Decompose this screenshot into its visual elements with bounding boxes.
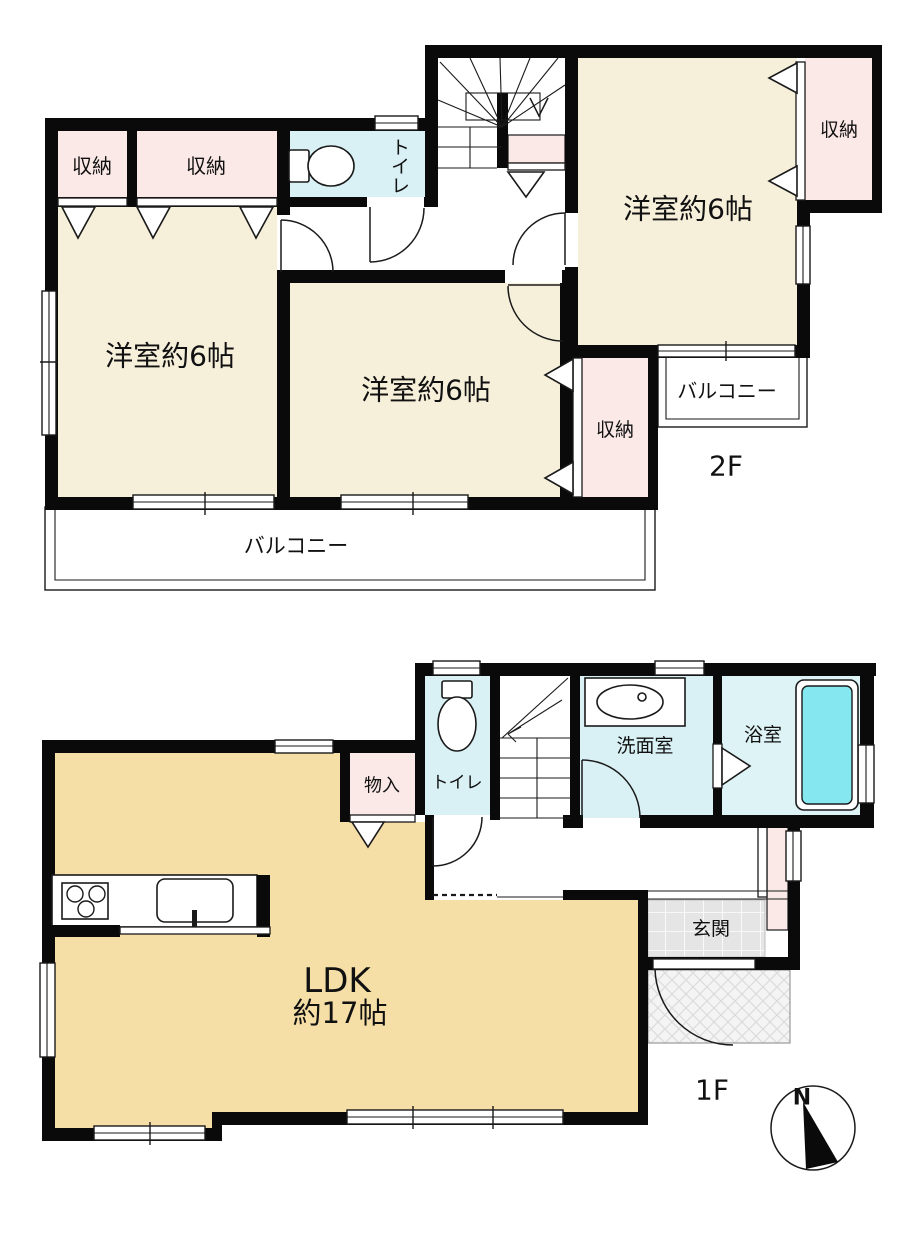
wall — [497, 93, 508, 168]
wall — [127, 131, 137, 197]
wall — [425, 45, 438, 207]
window — [796, 226, 810, 284]
closet-door — [137, 198, 277, 206]
compass: N — [771, 1086, 855, 1171]
wall — [563, 815, 583, 828]
window — [94, 1122, 205, 1145]
wall — [415, 663, 876, 676]
wall — [42, 740, 425, 753]
door — [433, 817, 482, 866]
wall — [277, 131, 290, 510]
faucet — [192, 910, 197, 927]
label-ldk-name: LDK — [303, 961, 372, 1001]
closet-stair-mini — [508, 135, 565, 163]
door-opening — [367, 197, 424, 207]
window — [375, 116, 418, 130]
window — [655, 661, 704, 675]
hall-closet — [767, 827, 788, 930]
wall — [570, 663, 580, 820]
floor1-plan: 物入 トイレ 洗面室 浴室 玄関 LDK 約17帖 1F — [40, 661, 876, 1145]
window — [786, 831, 801, 881]
label-floor1: 1F — [695, 1074, 729, 1107]
closet-door-marker — [508, 172, 544, 197]
wall — [640, 815, 874, 828]
closet-door — [573, 358, 582, 497]
label-washroom: 洗面室 — [616, 735, 673, 757]
wall — [340, 740, 350, 822]
compass-north-label: N — [793, 1086, 811, 1111]
window — [433, 661, 480, 675]
label-floor2: 2F — [709, 450, 743, 483]
label-toilet-2f: トイレ — [388, 138, 410, 195]
door-opening — [505, 270, 562, 283]
floor-plan-image: 収納 収納 トイレ 洋室約6帖 洋室約6帖 洋室約6帖 収納 収納 バルコニー … — [0, 0, 918, 1235]
label-bedroom-middle: 洋室約6帖 — [361, 374, 491, 407]
window — [40, 963, 55, 1057]
wall — [45, 118, 430, 131]
label-closet-right: 収納 — [820, 119, 858, 141]
window — [858, 745, 874, 803]
washbasin — [585, 678, 685, 726]
wall — [560, 497, 658, 510]
label-entrance: 玄関 — [692, 918, 730, 940]
bathtub — [796, 680, 858, 810]
wall — [648, 348, 658, 510]
label-storage: 物入 — [364, 776, 400, 797]
door-opening — [565, 213, 578, 267]
wall — [415, 663, 425, 815]
wall — [872, 45, 882, 213]
wall — [42, 740, 55, 1141]
wall — [425, 45, 578, 58]
closet-door — [58, 198, 127, 206]
staircase-1f — [500, 678, 570, 818]
wall — [45, 497, 570, 510]
window — [133, 492, 274, 515]
label-bathroom: 浴室 — [744, 724, 782, 746]
label-balcony-south: バルコニー — [244, 534, 349, 558]
door — [370, 207, 424, 262]
label-bedroom-left: 洋室約6帖 — [105, 340, 235, 373]
closet-door — [713, 744, 722, 788]
door — [513, 213, 565, 265]
wall — [578, 45, 880, 58]
closet-door — [350, 815, 415, 822]
wall — [797, 200, 882, 213]
window — [275, 740, 333, 753]
window — [40, 291, 58, 435]
door-opening — [277, 215, 290, 270]
toilet-fixture — [438, 681, 476, 751]
balcony-south — [45, 507, 655, 590]
closet-door — [508, 163, 565, 170]
label-closet-wide-left: 収納 — [186, 154, 226, 178]
closet-door — [758, 827, 767, 897]
entrance-porch — [648, 970, 790, 1043]
label-closet-middle: 収納 — [596, 419, 634, 441]
label-closet-small-left: 収納 — [72, 154, 112, 178]
kitchen-counter — [42, 875, 270, 937]
wall — [638, 890, 648, 1123]
toilet-fixture — [289, 146, 354, 186]
window — [341, 492, 468, 515]
wall — [563, 890, 648, 900]
window — [347, 1106, 563, 1129]
label-balcony-east: バルコニー — [677, 379, 777, 403]
label-toilet-1f: トイレ — [432, 773, 483, 793]
floor2-plan: 収納 収納 トイレ 洋室約6帖 洋室約6帖 洋室約6帖 収納 収納 バルコニー … — [40, 45, 882, 590]
label-ldk-size: 約17帖 — [293, 996, 388, 1030]
wall — [490, 676, 500, 820]
label-bedroom-right: 洋室約6帖 — [623, 193, 753, 226]
